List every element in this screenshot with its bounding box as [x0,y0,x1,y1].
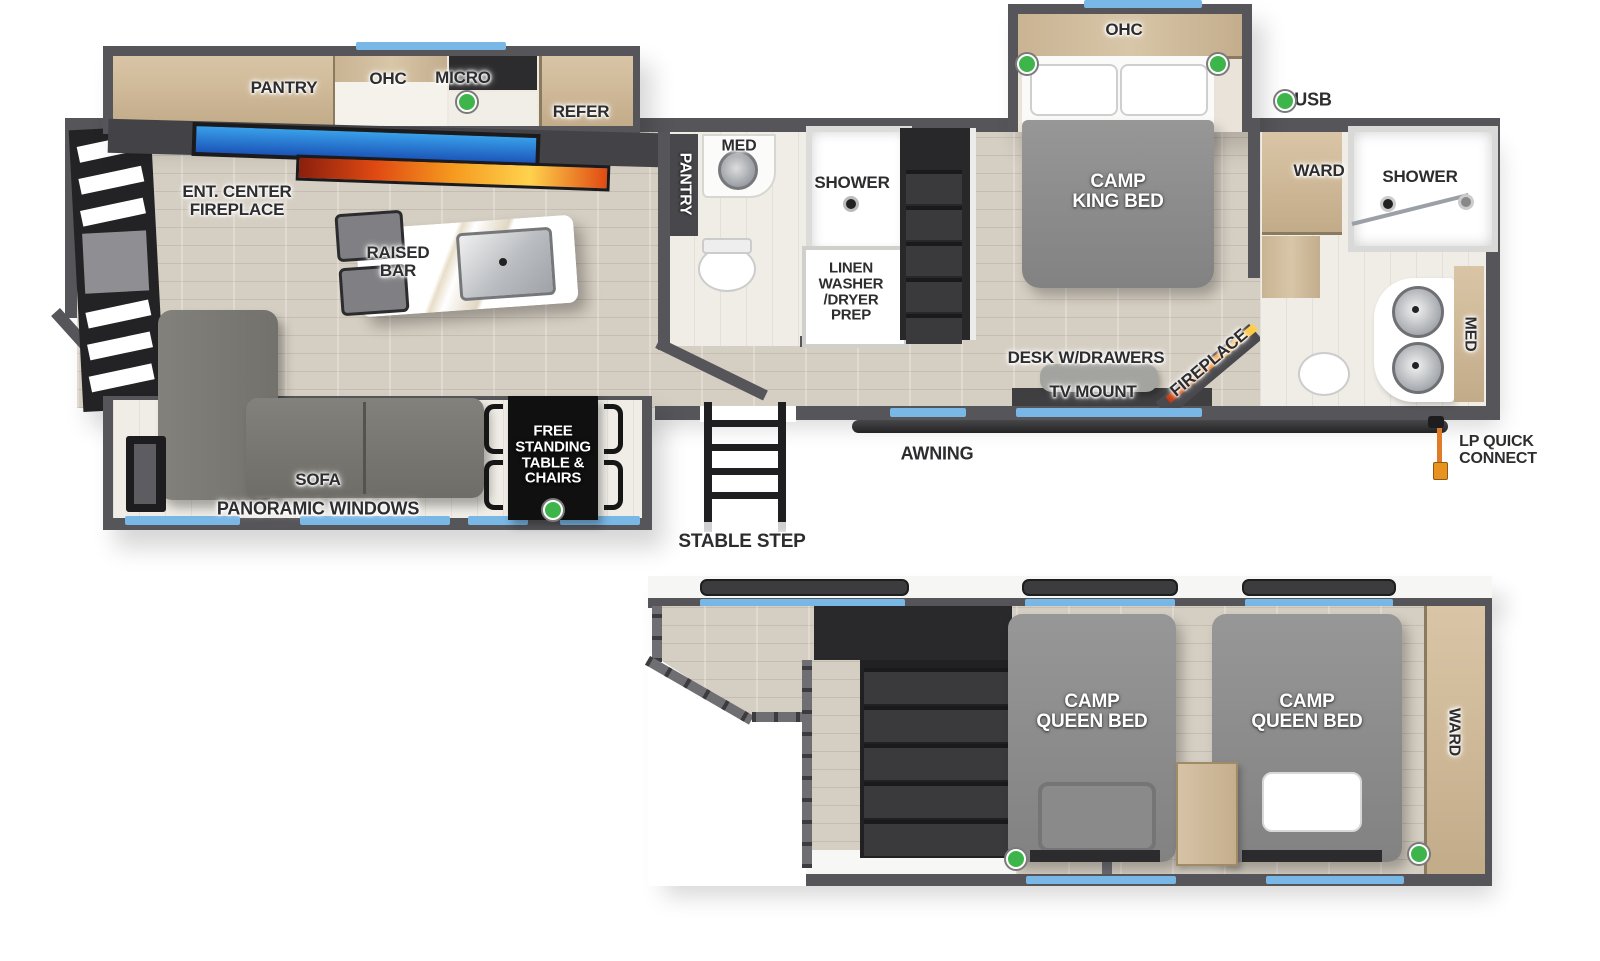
rear-toilet [1298,352,1350,396]
blind-slat [78,166,144,195]
kitchen-counter [335,82,447,126]
camp-queen-right-label: CAMP QUEEN BED [1251,692,1362,732]
tv-mount-label: TV MOUNT [1049,383,1136,401]
usb-port-dot [1409,844,1429,864]
stair-edge [970,128,976,340]
vanity-sink [1392,342,1444,394]
sink-drain [1412,362,1419,369]
usb-port-dot [457,92,477,112]
panoramic-windows-label: PANORAMIC WINDOWS [217,500,419,519]
wall [1248,118,1260,278]
pillow [1120,64,1208,116]
usb-legend-dot [1275,91,1295,111]
ohc-label: OHC [369,70,406,88]
bed-mat [1242,850,1382,862]
bath-sink [718,150,758,190]
bedroom-ohc-label: OHC [1105,21,1142,39]
mid-shower-label: SHOWER [814,174,889,192]
rv-floorplan-diagram: PANTRY OHC MICRO REFER ENT. CENTER FIREP… [0,0,1600,961]
stable-step-ladder [704,402,788,532]
raised-bar-label: RAISED BAR [366,244,429,280]
camp-king-bed-label: CAMP KING BED [1072,172,1163,212]
window-strip [1026,876,1176,884]
dinette-chair [604,404,623,454]
lp-connector [1433,462,1448,480]
side-tv-screen [134,444,156,504]
shower-drain [843,196,859,212]
stairs-loft [860,660,1012,858]
blind-slat [85,300,151,329]
window-strip [356,42,506,50]
roof-vent [700,579,909,596]
usb-port-dot [1006,849,1026,869]
stairs-loft-landing [814,606,1012,660]
rear-cabinet-low [1262,236,1320,298]
camp-queen-left-label: CAMP QUEEN BED [1036,692,1147,732]
rear-shower-label: SHOWER [1382,168,1457,186]
shower-drain [1380,196,1396,212]
awning-label: AWNING [901,445,974,464]
stable-step-label: STABLE STEP [678,532,805,552]
pillow [1030,64,1118,116]
stairs-main [900,128,970,340]
stair-step [906,242,962,276]
usb-port-dot [1017,54,1037,74]
vanity-sink [1392,286,1444,338]
pillow [1262,772,1362,832]
blind-panel [82,230,149,293]
sink-drain [1412,306,1419,313]
toilet-tank [702,238,752,254]
shower-drain [1458,194,1474,210]
ladder-rung [706,468,786,475]
refer-label: REFER [553,103,610,121]
ladder-rung [706,444,786,451]
mid-bath-pantry-label: PANTRY [676,153,693,216]
lp-stub [1428,416,1444,428]
usb-port-dot [543,500,563,520]
wall [658,132,670,350]
dinette-chair [484,404,503,454]
stair-step [906,170,962,204]
window-strip [1016,408,1202,417]
stair-step [864,782,1008,818]
stair-step [906,314,962,344]
loft-railing [802,660,812,868]
desk-label: DESK W/DRAWERS [1008,349,1165,367]
rear-ward-cabinet [1262,132,1342,235]
stair-step [864,668,1008,704]
sofa-label: SOFA [295,471,341,489]
awning-roller [852,420,1448,433]
loft-open-area [648,718,806,886]
dinette-chair [484,460,503,510]
usb-port-dot [1208,54,1228,74]
side-tv [126,436,166,512]
bed-mat [1030,850,1160,862]
dinette-label: FREE STANDING TABLE & CHAIRS [515,424,591,487]
ladder-rung [706,420,786,427]
sink-drain [499,258,507,266]
loft-railing [652,606,662,662]
nightstand [1176,762,1238,866]
dinette-chair [604,460,623,510]
blind-slat [89,363,155,392]
ent-center-fireplace-label: ENT. CENTER FIREPLACE [182,183,291,219]
linen-label: LINEN WASHER /DRYER PREP [819,261,884,324]
blind-slat [87,331,153,360]
window-strip [1266,876,1404,884]
sofa-seam [363,402,366,494]
stair-step [864,744,1008,780]
rear-ward-label: WARD [1293,162,1344,180]
roof-vent [1242,579,1396,596]
loft-ward-label: WARD [1445,708,1462,756]
rear-med-label: MED [1461,317,1478,352]
rear-shower [1348,126,1498,252]
stair-step [864,706,1008,742]
window-strip [890,408,966,417]
stair-step [906,278,962,312]
stair-step [906,206,962,240]
bed-roll-pillow [1038,782,1156,852]
window-strip [1084,0,1202,8]
roof-vent [1022,579,1178,596]
blind-slat [80,198,146,227]
usb-legend-label: USB [1294,91,1331,110]
micro-label: MICRO [435,69,491,87]
pantry-label: PANTRY [251,79,318,97]
mid-bath-med-label: MED [722,139,757,156]
lp-quick-connect-label: LP QUICK CONNECT [1459,434,1537,468]
stair-step [864,820,1008,856]
front-window-blinds [69,126,166,412]
ladder-rung [706,492,786,499]
